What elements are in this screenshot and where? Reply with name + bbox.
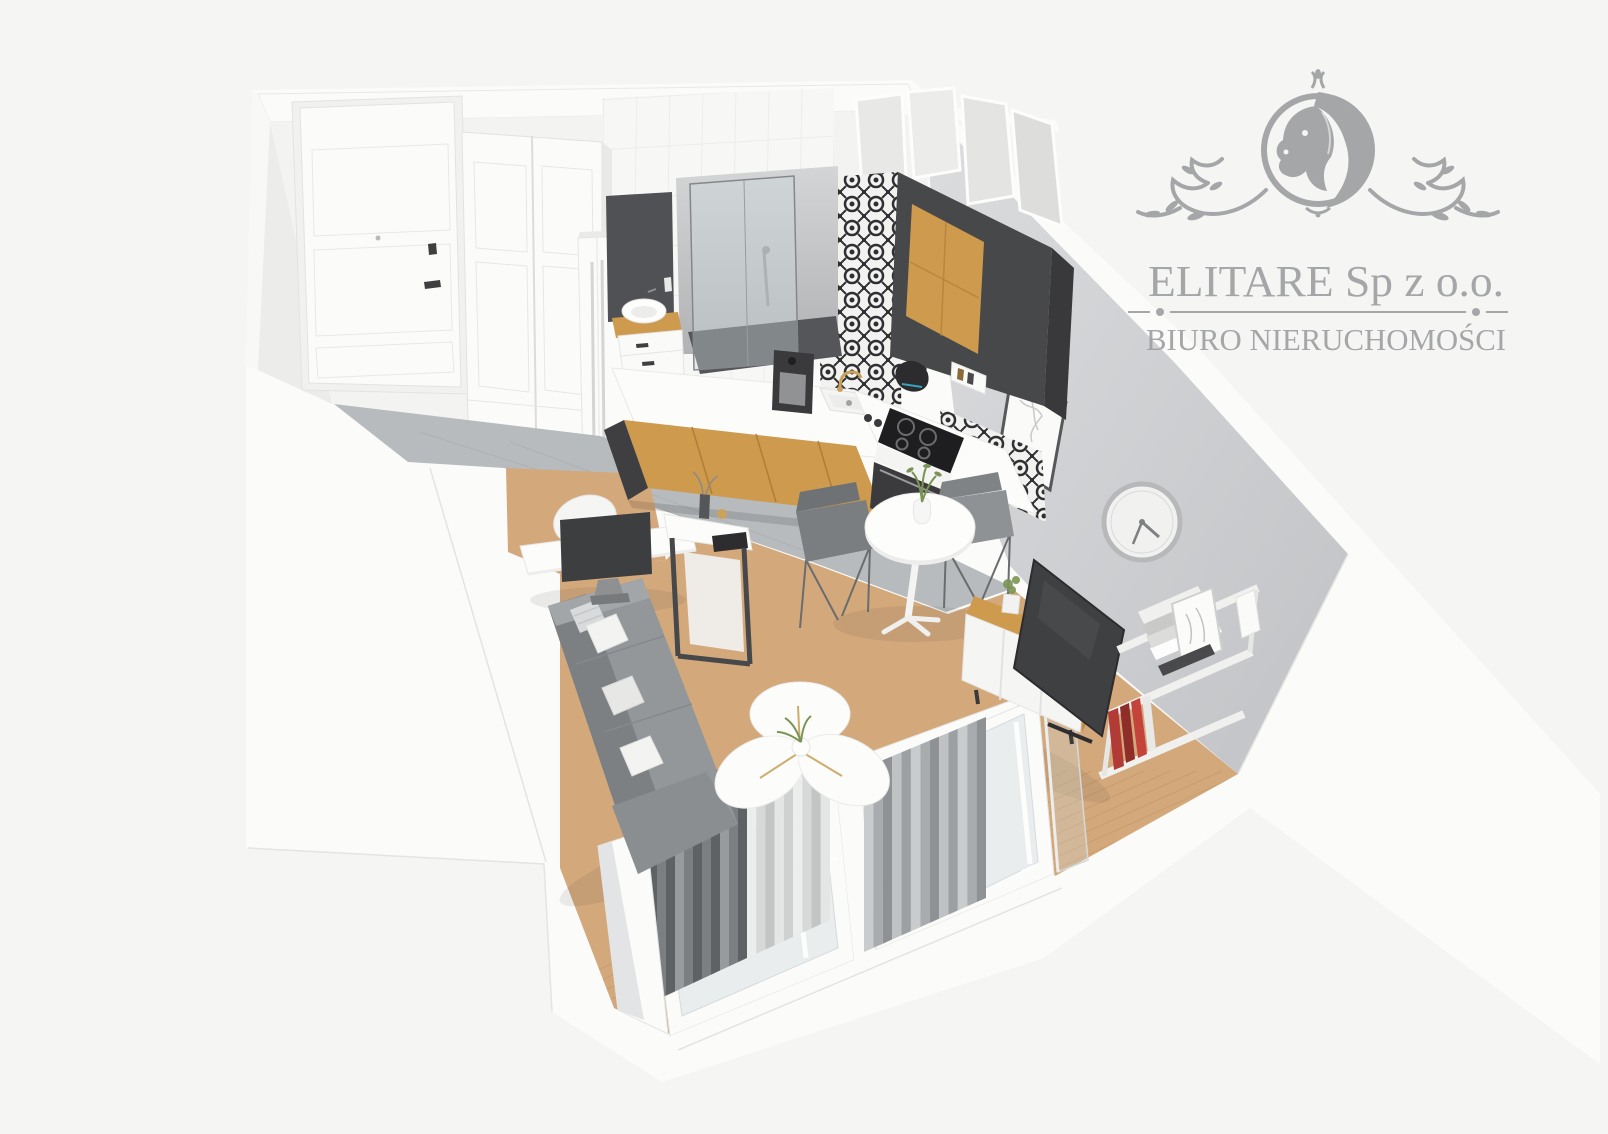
wall-clock bbox=[1104, 484, 1180, 560]
door-peephole bbox=[376, 236, 381, 241]
lion-emblem bbox=[1138, 69, 1498, 222]
watermark-divider bbox=[1128, 308, 1508, 316]
entrance-door bbox=[292, 96, 470, 394]
watermark-company: ELITARE Sp z o.o. bbox=[1148, 257, 1504, 306]
shower-glass bbox=[690, 176, 798, 370]
watermark: ELITARE Sp z o.o. BIURO NIERUCHOMOŚCI bbox=[1128, 69, 1508, 357]
soap-bottle bbox=[664, 277, 672, 292]
apartment-3d-render: ELITARE Sp z o.o. BIURO NIERUCHOMOŚCI bbox=[0, 0, 1608, 1134]
coffee-machine bbox=[772, 350, 814, 414]
watermark-tagline: BIURO NIERUCHOMOŚCI bbox=[1146, 322, 1506, 357]
floorplan-screenshot: ELITARE Sp z o.o. BIURO NIERUCHOMOŚCI bbox=[0, 0, 1608, 1134]
door-lock bbox=[428, 243, 437, 255]
